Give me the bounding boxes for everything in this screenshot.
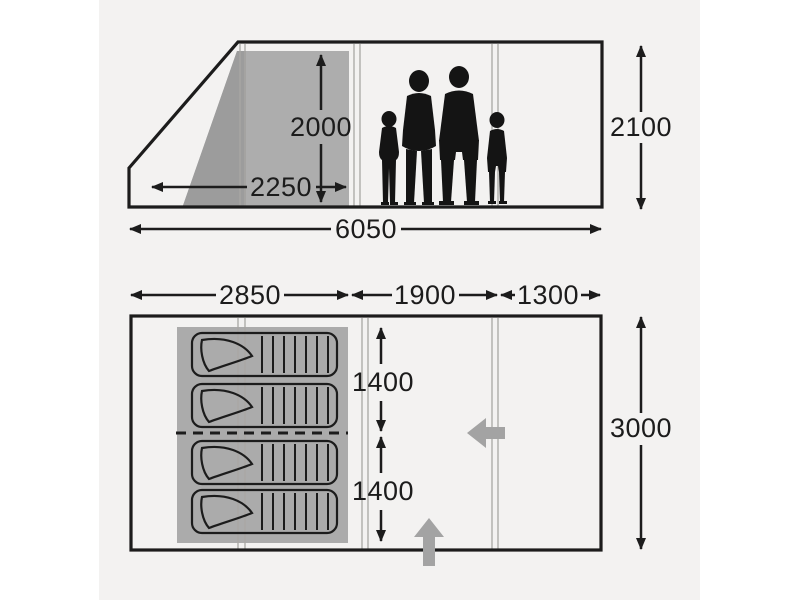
dim-bedroom-width-label: 2250 (250, 172, 312, 202)
tent-dimensions-diagram: 2000 2250 6050 2100 (0, 0, 800, 600)
dim-total-width-label: 3000 (610, 413, 672, 443)
dim-inner-height-label: 2000 (290, 112, 352, 142)
dim-total-length-label: 6050 (335, 214, 397, 244)
dim-canopy-length-label: 1300 (517, 280, 579, 310)
dim-living-length-label: 1900 (394, 280, 456, 310)
diagram-svg: 2000 2250 6050 2100 (0, 0, 800, 600)
dim-bedroom-length-label: 2850 (219, 280, 281, 310)
dim-bedroom-depth-upper-label: 1400 (352, 367, 414, 397)
dim-bedroom-depth-lower-label: 1400 (352, 476, 414, 506)
dim-outer-height-label: 2100 (610, 112, 672, 142)
